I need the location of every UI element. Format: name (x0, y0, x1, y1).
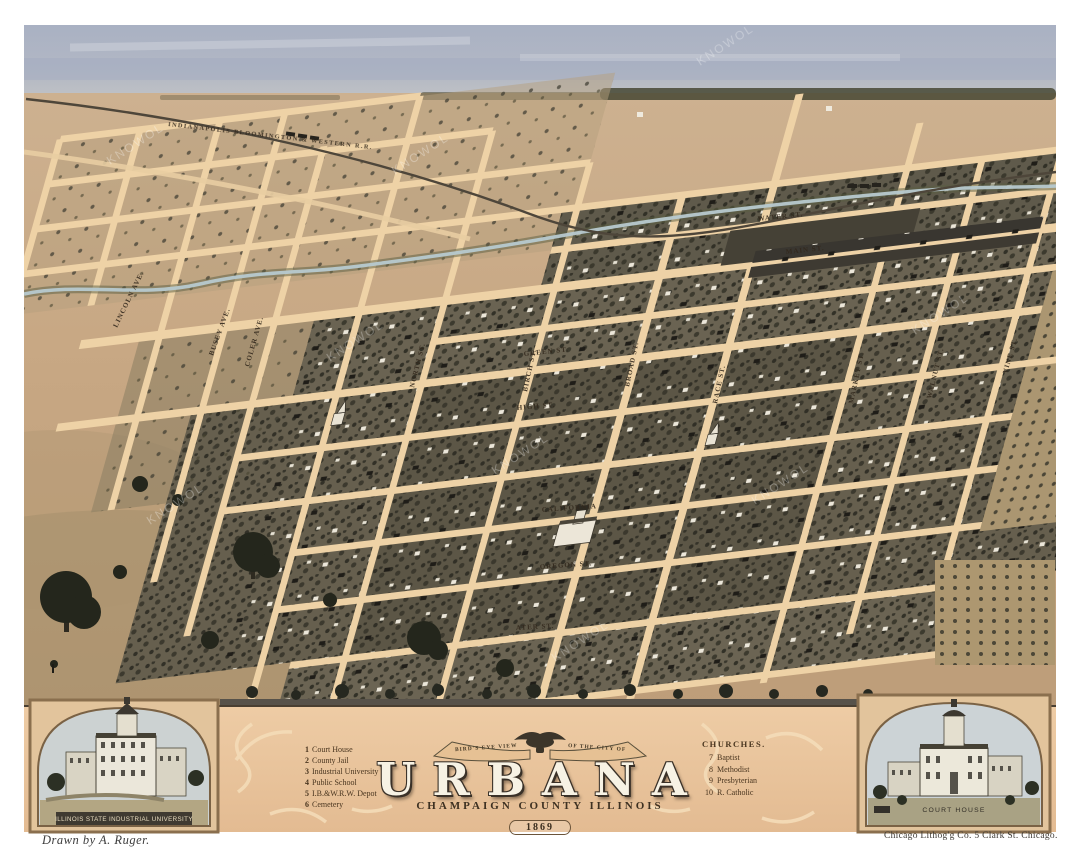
legend-item: 6Cemetery (300, 799, 470, 810)
legend-label: Public School (312, 778, 357, 787)
legend-num: 4 (300, 777, 309, 788)
legend-label: Cemetery (312, 800, 343, 809)
church-item: 8Methodist (702, 764, 822, 776)
church-label: Presbyterian (717, 776, 757, 785)
map-canvas: LINCOLN AVE. BUSEY AVE. COLER AVE. NORTH… (0, 0, 1080, 864)
churches-heading: CHURCHES. (702, 739, 822, 749)
legend-item: 1Court House (300, 744, 470, 755)
map-subtitle: CHAMPAIGN COUNTY ILLINOIS (0, 800, 1080, 812)
church-label: Methodist (717, 765, 749, 774)
legend-item: 2County Jail (300, 755, 470, 766)
legend-num: 6 (300, 799, 309, 810)
church-label: R. Catholic (717, 788, 753, 797)
legend-num: 5 (300, 788, 309, 799)
church-label: Baptist (717, 753, 740, 762)
legend-label: I.B.&W.R.W. Depot (312, 789, 377, 798)
church-item: 7Baptist (702, 752, 822, 764)
printer-credit: Chicago Lithog'g Co. 5 Clark St. Chicago… (884, 831, 1058, 841)
legend-num: 3 (300, 766, 309, 777)
map-lithograph-page: LINCOLN AVE. BUSEY AVE. COLER AVE. NORTH… (0, 0, 1080, 864)
year-badge: 1869 (509, 820, 571, 835)
artist-credit: Drawn by A. Ruger. (42, 833, 150, 848)
legend-label: Industrial University (312, 767, 378, 776)
legend-num: 1 (300, 744, 309, 755)
map-title: URBANA (0, 753, 1080, 806)
church-num: 9 (702, 775, 713, 787)
church-item: 10R. Catholic (702, 787, 822, 799)
legend-item: 4Public School (300, 777, 470, 788)
church-num: 7 (702, 752, 713, 764)
legend-label: County Jail (312, 756, 349, 765)
church-num: 10 (702, 787, 713, 799)
church-num: 8 (702, 764, 713, 776)
legend-item: 5I.B.&W.R.W. Depot (300, 788, 470, 799)
church-item: 9Presbyterian (702, 775, 822, 787)
churches-list: CHURCHES. 7Baptist 8Methodist 9Presbyter… (702, 739, 822, 798)
legend-list: 1Court House 2County Jail 3Industrial Un… (300, 744, 470, 810)
legend-num: 2 (300, 755, 309, 766)
legend-label: Court House (312, 745, 353, 754)
legend-item: 3Industrial University (300, 766, 470, 777)
